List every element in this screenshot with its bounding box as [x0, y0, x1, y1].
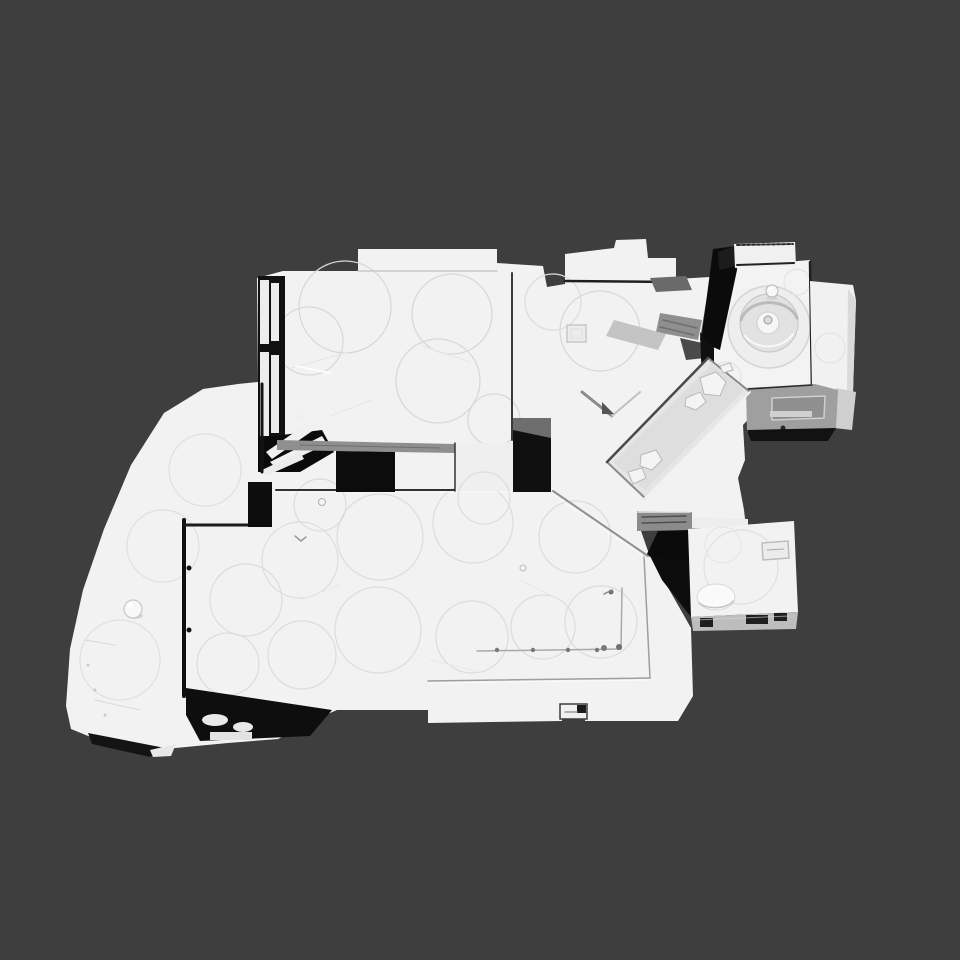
shadow-gap	[336, 451, 395, 492]
terrain-sphere	[124, 600, 142, 618]
bottom-left-bar	[210, 732, 252, 740]
railing-post	[566, 648, 570, 652]
ledge-hatch	[642, 516, 686, 517]
ledge-gray	[637, 511, 692, 531]
mesh-svg	[0, 0, 960, 960]
lower-block-white	[455, 443, 513, 491]
roof-pebble	[520, 565, 526, 571]
railing-corner	[616, 644, 622, 650]
fountain-knob-tip	[764, 316, 772, 324]
terrain-speckle	[104, 714, 107, 717]
bottom-left-blob	[233, 722, 253, 732]
topblock-streak	[650, 276, 692, 292]
ledge-hatch	[642, 522, 686, 523]
cube-hatch-frame	[762, 541, 789, 560]
roof-pebble	[319, 499, 326, 506]
wall-strip	[271, 283, 279, 341]
terrain-sphere-highlight	[128, 603, 133, 608]
wall-strip	[260, 280, 269, 344]
3d-viewport[interactable]	[0, 0, 960, 960]
recessed-face-shadow	[747, 428, 836, 441]
terrain-speckle	[94, 689, 97, 692]
seam-dot	[187, 628, 192, 633]
door-notch-dark	[577, 705, 586, 713]
seam-notch	[248, 482, 272, 527]
roof-sphere-highlight	[768, 287, 772, 291]
railing-post	[495, 648, 499, 652]
bottom-left-blob	[202, 714, 228, 726]
railing-post	[531, 648, 535, 652]
railing-post	[595, 648, 599, 652]
top-small-block-serration	[737, 244, 793, 245]
wall-strip	[271, 355, 279, 433]
seam-dot	[187, 566, 192, 571]
mid-roof-vent-box	[567, 325, 586, 342]
railing-blob	[601, 645, 607, 651]
terrain-speckle	[87, 664, 90, 667]
railing-vertical	[621, 588, 622, 649]
roof-sphere	[766, 285, 778, 297]
recessed-face-bar	[770, 411, 812, 417]
cube-front-mark	[746, 615, 768, 624]
